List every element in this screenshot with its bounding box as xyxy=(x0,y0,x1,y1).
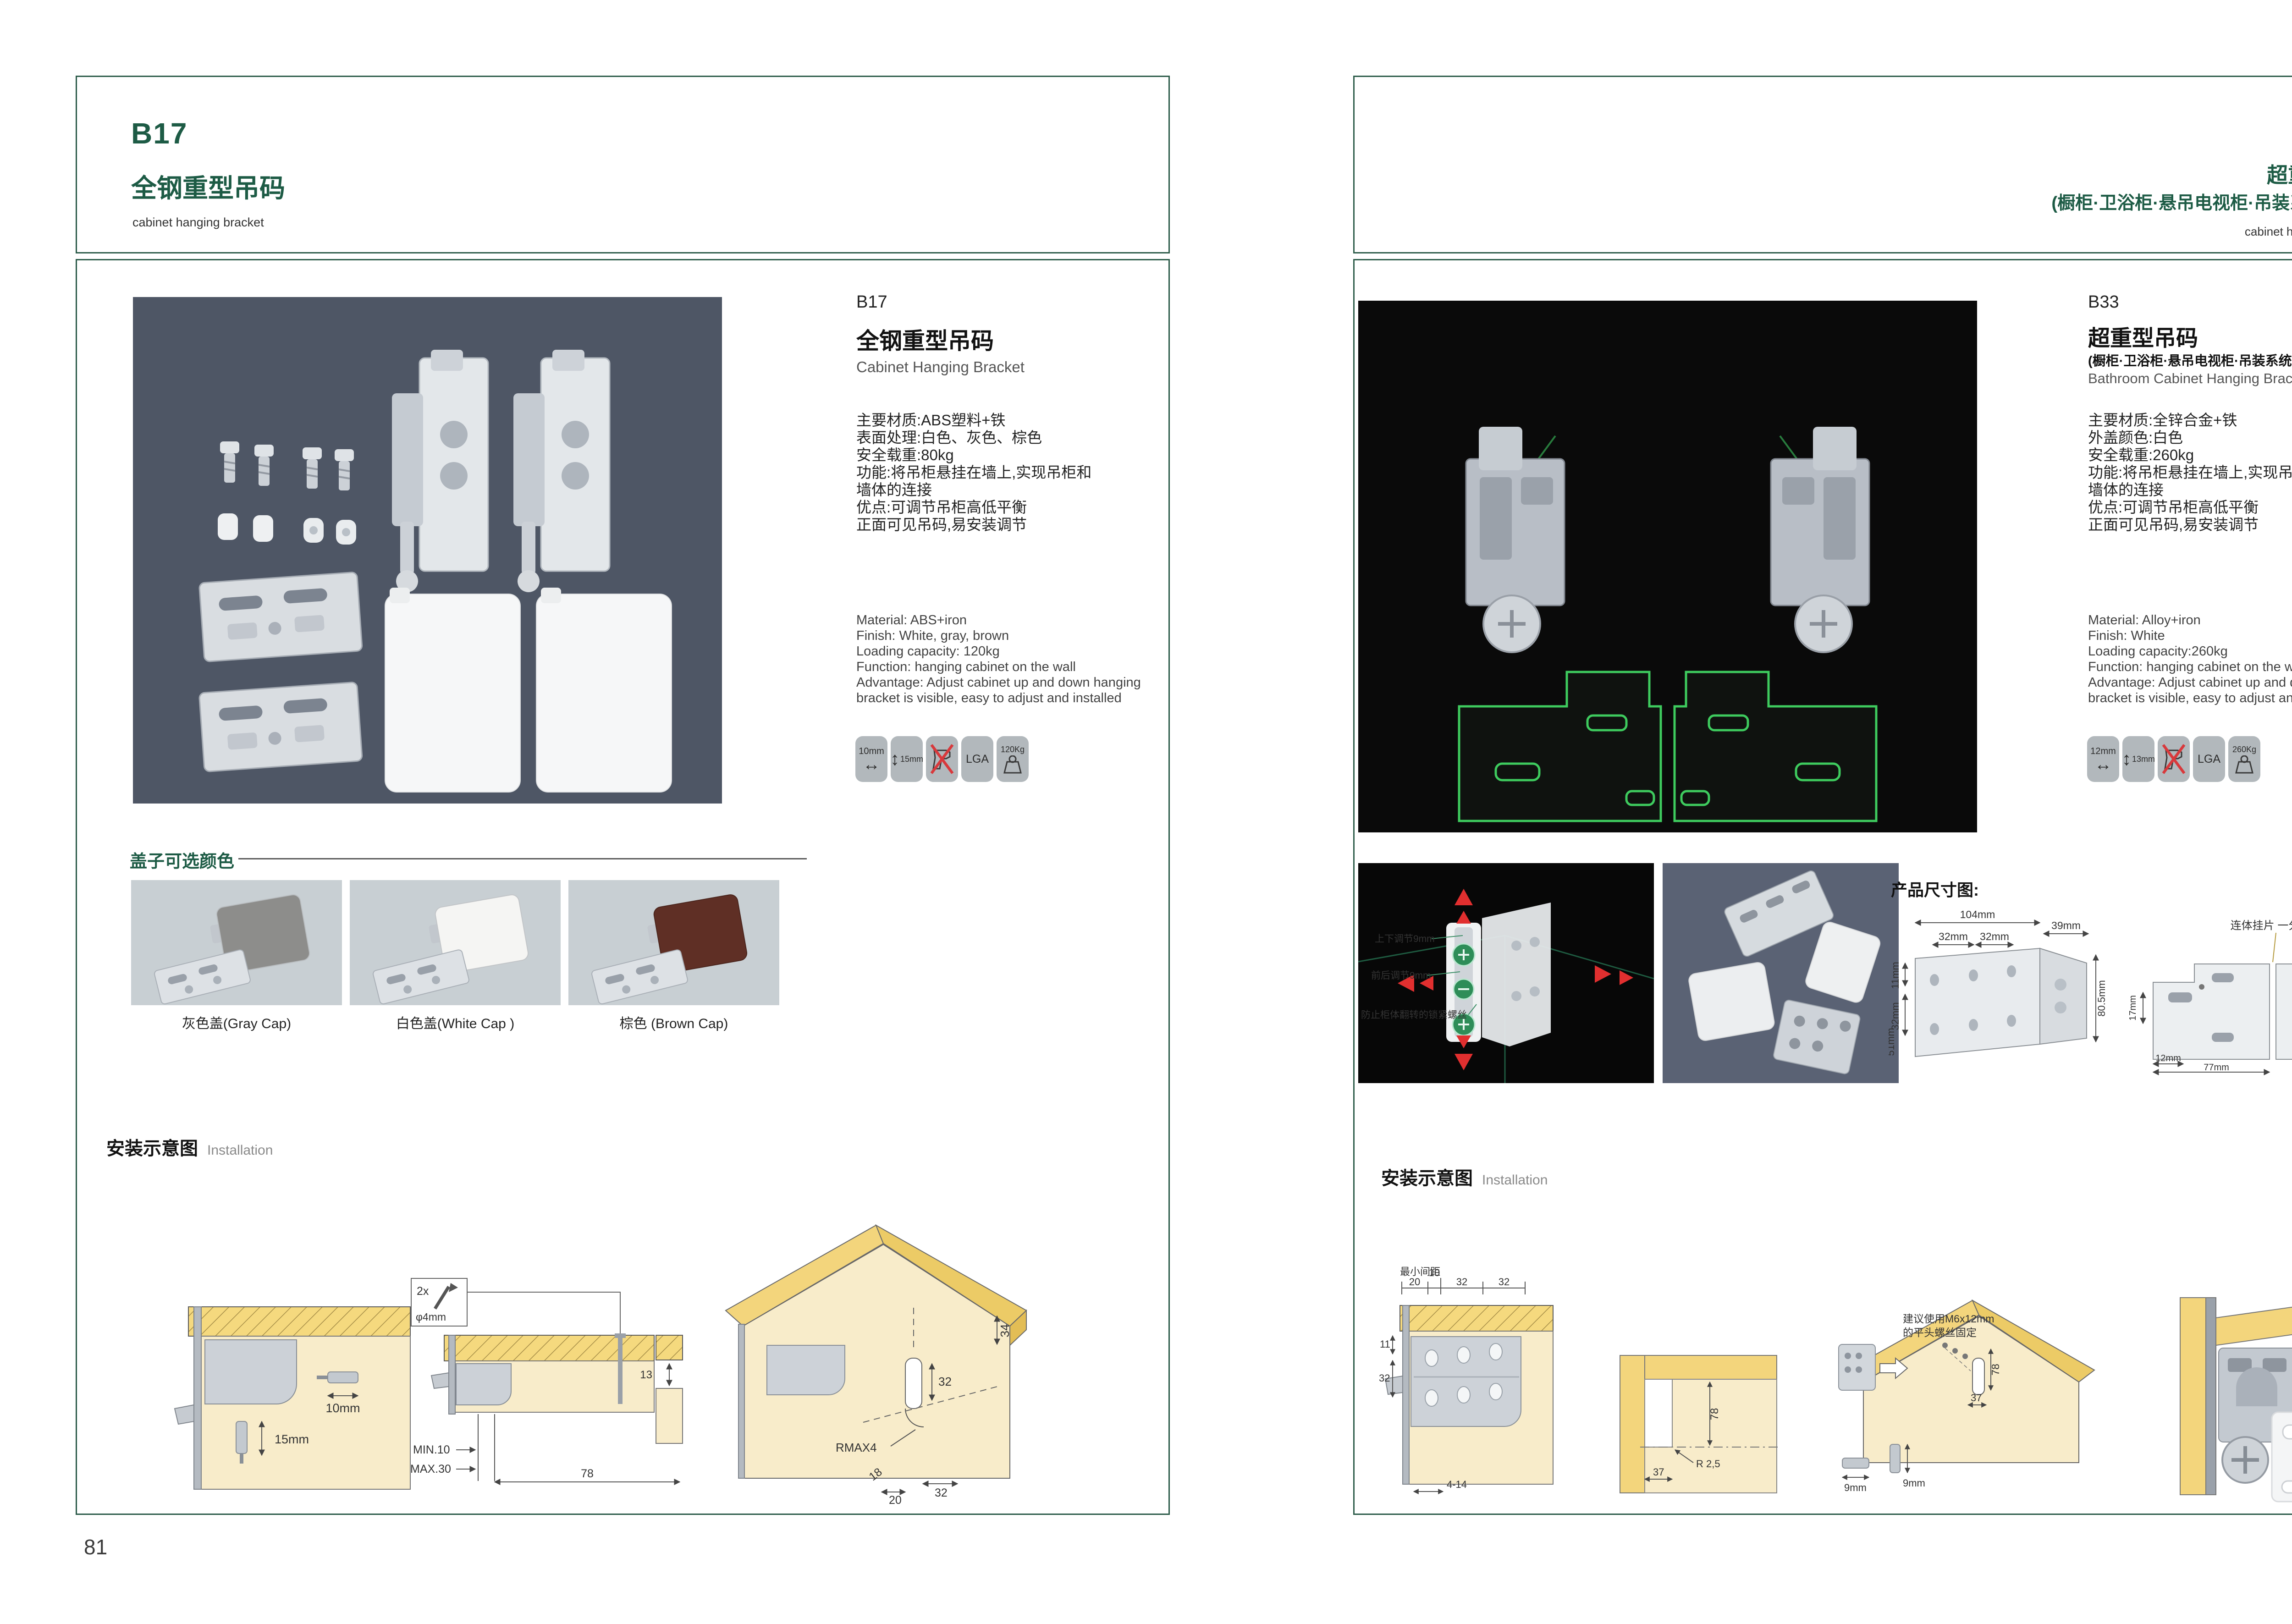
cap-label-gray: 灰色盖(Gray Cap) xyxy=(131,1012,342,1032)
dim-label: 78 xyxy=(581,1467,594,1480)
product-name-en: Bathroom Cabinet Hanging Bracket xyxy=(2088,370,2292,387)
adjustment-detail-photo: 上下调节9mm 前后调节9mm 防止柜体翻转的锁紧螺丝 xyxy=(1358,863,1654,1083)
dim-label: 39mm xyxy=(2051,919,2081,931)
dim-label: 80.5mm xyxy=(2096,980,2107,1016)
dim-label: 9mm xyxy=(1903,1477,1925,1489)
dim-label: MIN.10 xyxy=(413,1443,450,1456)
dim-label: 32mm xyxy=(1939,930,1968,942)
wall-plate-2 xyxy=(199,682,362,772)
spec-line: 墙体的连接 xyxy=(856,481,1091,499)
b33-header-box: B33 超重型吊码 (橱柜·卫浴柜·悬吊电视柜·吊装系统 专用) cabinet… xyxy=(1353,76,2292,253)
wall-plate-1 xyxy=(199,572,362,662)
specs-zh: 主要材质:ABS塑料+铁 表面处理:白色、灰色、棕色 安全载重:80kg 功能:… xyxy=(856,412,1091,534)
badge-no-drill xyxy=(926,736,958,782)
installation-title-en: Installation xyxy=(207,1143,273,1158)
product-name-en: Cabinet Hanging Bracket xyxy=(856,358,1025,376)
width-range-icon: ↔ xyxy=(2094,757,2112,772)
bracket-dimension-drawing: 104mm 39mm 32mm 32mm 11mm 32mm 51mm 80.5… xyxy=(1889,904,2118,1076)
dim-label: 32mm xyxy=(1890,1002,1901,1030)
load-capacity-icon xyxy=(1002,755,1024,774)
dim-label: 4-14 xyxy=(1447,1479,1467,1490)
load-capacity-icon xyxy=(2233,755,2255,774)
b17-header-box: B17 全钢重型吊码 cabinet hanging bracket xyxy=(76,76,1170,253)
dim-label: R 2,5 xyxy=(1696,1458,1720,1470)
specs-en: Material: ABS+iron Finish: White, gray, … xyxy=(856,612,1141,706)
spec-line: Loading capacity: 120kg xyxy=(856,644,1141,659)
dim-label: MAX.30 xyxy=(410,1463,451,1475)
dim-label: 51mm xyxy=(1889,1028,1896,1056)
spec-line: Advantage: Adjust cabinet up and down ha… xyxy=(856,675,1141,690)
spec-line: 优点:可调节吊柜高低平衡 xyxy=(856,499,1091,516)
brown-cap-image xyxy=(568,880,779,1005)
width-range-icon: ↔ xyxy=(863,757,880,772)
dim-label: 32 xyxy=(1499,1276,1510,1288)
spec-line: Function: hanging cabinet on the wall xyxy=(856,659,1141,675)
spec-line: Material: ABS+iron xyxy=(856,612,1141,628)
white-cap-image xyxy=(350,880,561,1005)
spec-line: bracket is visible, easy to adjust and i… xyxy=(2088,690,2292,706)
b17-product-photo xyxy=(133,297,722,804)
adjust-label: 上下调节9mm xyxy=(1375,934,1435,944)
dimensions-title: 产品尺寸图: xyxy=(1891,877,1979,901)
cap-option-brown xyxy=(568,880,779,1005)
b17-content-box: B17 全钢重型吊码 Cabinet Hanging Bracket 主要材质:… xyxy=(76,259,1170,1515)
product-name-zh2: (橱柜·卫浴柜·悬吊电视柜·吊装系统 专用) xyxy=(2088,350,2292,369)
cap-label-white: 白色盖(White Cap ) xyxy=(350,1012,561,1032)
dim-label: 37 xyxy=(1653,1466,1664,1478)
spec-line: 主要材质:ABS塑料+铁 xyxy=(856,412,1091,429)
install-diagram-mounted xyxy=(2167,1289,2292,1505)
badge-height-label: 15mm xyxy=(900,754,923,764)
cover-left xyxy=(1688,962,1775,1042)
dim-label: 32 xyxy=(1456,1276,1467,1288)
badge-load-label: 120Kg xyxy=(1001,745,1025,754)
cap-options-divider xyxy=(238,858,807,859)
installation-title-zh: 安装示意图 xyxy=(106,1139,198,1159)
badge-row: 12mm ↔ ↕ 13mm LGA 260Kg xyxy=(2087,736,2260,782)
screw-diameter-label: φ4mm xyxy=(416,1311,446,1323)
dim-label: 32mm xyxy=(1980,930,2009,942)
dim-label: 78 xyxy=(1989,1364,2001,1376)
spec-line: Material: Alloy+iron xyxy=(2088,612,2292,628)
installation-title: 安装示意图Installation xyxy=(1381,1163,1548,1190)
dim-label: 10mm xyxy=(325,1401,360,1415)
dim-label: 12mm xyxy=(2155,1053,2181,1063)
spec-line: 正面可见吊码,易安装调节 xyxy=(2088,516,2292,534)
dim-label: 104mm xyxy=(1960,908,1995,920)
install-diagram-isometric: 建议使用M6x12mm 的平头螺丝固定 78 37 9mm 9mm xyxy=(1835,1276,2101,1505)
dim-label: 13 xyxy=(640,1369,652,1381)
b17-subtitle-en: cabinet hanging bracket xyxy=(132,215,264,230)
spec-line: 功能:将吊柜悬挂在墙上,实现吊柜和 xyxy=(2088,464,2292,481)
badge-load: 120Kg xyxy=(997,736,1029,782)
note-label: 的平头螺丝固定 xyxy=(1903,1327,1977,1338)
spec-line: 表面处理:白色、灰色、棕色 xyxy=(856,429,1091,446)
specs-zh: 主要材质:全锌合金+铁 外盖颜色:白色 安全载重:260kg 功能:将吊柜悬挂在… xyxy=(2088,412,2292,534)
dim-label: 15mm xyxy=(275,1432,309,1446)
dim-label: RMAX4 xyxy=(836,1441,877,1454)
spec-line: 功能:将吊柜悬挂在墙上,实现吊柜和 xyxy=(856,464,1091,481)
badge-load-label: 260Kg xyxy=(2232,745,2256,754)
installation-title-en: Installation xyxy=(1482,1173,1548,1188)
lga-icon: LGA xyxy=(966,753,989,766)
spec-line: 安全载重:80kg xyxy=(856,446,1091,464)
dim-label: 77mm xyxy=(2204,1062,2229,1073)
spec-line: 外盖颜色:白色 xyxy=(2088,429,2292,446)
adjust-label: 前后调节9mm xyxy=(1371,970,1431,981)
height-range-icon: ↕ xyxy=(890,749,899,770)
cap-option-white xyxy=(350,880,561,1005)
install-diagram-side-section: 10mm 15mm xyxy=(166,1276,432,1496)
spec-line: Finish: White xyxy=(2088,628,2292,644)
b33-product-photo xyxy=(1358,301,1977,832)
dim-label: 9mm xyxy=(1844,1482,1867,1493)
product-code: B17 xyxy=(856,292,887,312)
installation-title: 安装示意图Installation xyxy=(106,1134,273,1160)
install-diagram-spacing: 最小间距 20 10 32 32 11 32 4-14 xyxy=(1374,1264,1571,1503)
spec-line: 优点:可调节吊柜高低平衡 xyxy=(2088,499,2292,516)
badge-height: ↕ 15mm xyxy=(891,736,923,782)
install-diagram-recess: 78 R 2,5 37 xyxy=(1613,1340,1782,1503)
dim-label: 32 xyxy=(1379,1372,1390,1384)
spec-line: Finish: White, gray, brown xyxy=(856,628,1141,644)
gray-cap-image xyxy=(131,880,342,1005)
dim-label: 78 xyxy=(1708,1408,1721,1420)
badge-no-drill xyxy=(2158,736,2190,782)
bracket-cutaway xyxy=(1446,903,1551,1046)
lga-icon: LGA xyxy=(2198,753,2220,766)
exploded-parts-photo xyxy=(1663,863,1899,1083)
cap-options-title: 盖子可选颜色 xyxy=(130,847,234,872)
spec-line: 主要材质:全锌合金+铁 xyxy=(2088,412,2292,429)
dim-label: 20 xyxy=(1409,1276,1420,1288)
product-code: B33 xyxy=(2088,292,2119,312)
dim-label: 32 xyxy=(938,1375,952,1388)
no-drill-icon xyxy=(930,742,954,776)
b17-product-code: B17 xyxy=(131,116,187,150)
cap-label-brown: 棕色 (Brown Cap) xyxy=(568,1012,779,1032)
no-drill-icon xyxy=(2161,742,2186,776)
badge-height-label: 13mm xyxy=(2132,754,2155,764)
plate-label: 连体挂片 一分为二 xyxy=(2231,919,2292,932)
cap-option-gray xyxy=(131,880,342,1005)
plate-dimension-drawing: 连体挂片 一分为二 55mm 39mm 55mm 8mm 17mm 12mm 6… xyxy=(2125,918,2292,1076)
b33-subtitle-en: cabinet hanging bracket xyxy=(2245,225,2292,239)
badge-width: 12mm ↔ xyxy=(2087,736,2119,782)
badge-width: 10mm ↔ xyxy=(855,736,887,782)
badge-load: 260Kg xyxy=(2228,736,2260,782)
note-label: 建议使用M6x12mm xyxy=(1903,1313,1994,1325)
product-name-zh: 超重型吊码 xyxy=(2088,320,2198,352)
dim-label: 32 xyxy=(935,1486,948,1499)
dim-label: 20 xyxy=(889,1494,902,1507)
b17-title-zh: 全钢重型吊码 xyxy=(131,168,285,205)
dim-label: 34 xyxy=(998,1324,1012,1338)
spec-line: Loading capacity:260kg xyxy=(2088,644,2292,659)
dim-label: 11 xyxy=(1380,1338,1390,1350)
install-diagram-screw-section: 2x φ4mm 13 MIN.10 MAX.30 78 xyxy=(405,1266,694,1509)
b33-title-zh2: (橱柜·卫浴柜·悬吊电视柜·吊装系统 专用) xyxy=(2051,189,2292,215)
screw-qty-label: 2x xyxy=(417,1285,429,1298)
specs-en: Material: Alloy+iron Finish: White Loadi… xyxy=(2088,612,2292,706)
dim-label: 37 xyxy=(1971,1392,1982,1404)
adjust-label: 防止柜体翻转的锁紧螺丝 xyxy=(1361,1010,1467,1020)
spec-line: 墙体的连接 xyxy=(2088,481,2292,499)
dim-label: 11mm xyxy=(1890,962,1901,989)
product-name-zh: 全钢重型吊码 xyxy=(856,323,994,356)
dim-label: 17mm xyxy=(2128,995,2138,1021)
spec-line: 正面可见吊码,易安装调节 xyxy=(856,516,1091,534)
spec-line: 安全载重:260kg xyxy=(2088,446,2292,464)
spec-line: Function: hanging cabinet on the wall xyxy=(2088,659,2292,675)
badge-cert: LGA xyxy=(961,736,993,782)
installation-title-zh: 安装示意图 xyxy=(1381,1168,1473,1189)
badge-cert: LGA xyxy=(2193,736,2225,782)
dim-label: 10 xyxy=(1429,1267,1440,1278)
badge-height: ↕ 13mm xyxy=(2122,736,2154,782)
badge-row: 10mm ↔ ↕ 15mm LGA 120Kg xyxy=(855,736,1029,782)
page-number-left: 81 xyxy=(84,1535,107,1559)
spec-line: Advantage: Adjust cabinet up and down ha… xyxy=(2088,675,2292,690)
height-range-icon: ↕ xyxy=(2122,749,2131,770)
install-diagram-isometric: 34 32 RMAX4 18 20 32 xyxy=(698,1193,1051,1509)
b33-content-box: B33 超重型吊码 (橱柜·卫浴柜·悬吊电视柜·吊装系统 专用) Bathroo… xyxy=(1353,259,2292,1515)
spec-line: bracket is visible, easy to adjust and i… xyxy=(856,690,1141,706)
b33-title-zh: 超重型吊码 xyxy=(2267,159,2292,189)
